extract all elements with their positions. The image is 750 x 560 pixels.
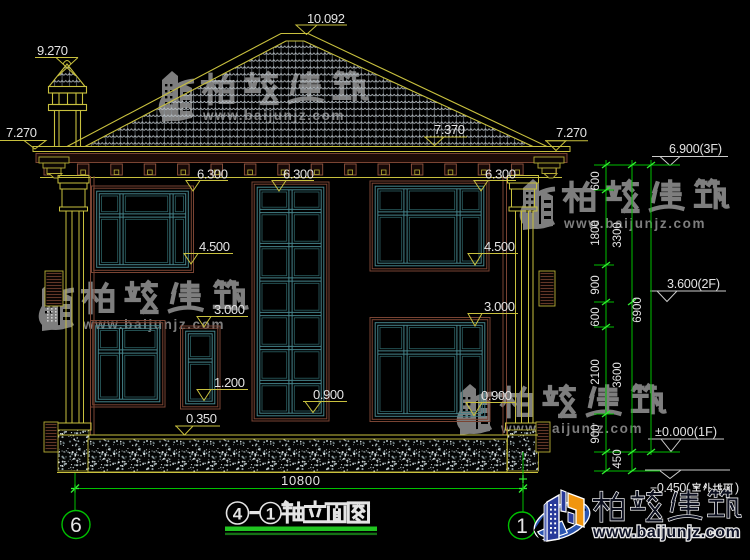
svg-text:7.270: 7.270 xyxy=(556,125,587,140)
svg-text:±0.000(1F): ±0.000(1F) xyxy=(655,425,717,439)
svg-text:4: 4 xyxy=(233,505,243,524)
svg-text:9.270: 9.270 xyxy=(37,43,68,58)
svg-text:1: 1 xyxy=(516,515,528,538)
svg-text:0.900: 0.900 xyxy=(313,387,344,402)
svg-text:900: 900 xyxy=(590,275,602,294)
svg-text:1.200: 1.200 xyxy=(214,375,245,390)
svg-text:600: 600 xyxy=(590,171,602,190)
svg-text:0.350: 0.350 xyxy=(186,411,217,426)
svg-text:0.900: 0.900 xyxy=(481,388,512,403)
svg-text:www.baijunjz.com: www.baijunjz.com xyxy=(592,524,740,541)
svg-text:600: 600 xyxy=(590,307,602,326)
svg-text:1: 1 xyxy=(266,505,275,524)
svg-text:3.000: 3.000 xyxy=(214,302,245,317)
svg-text:www.baijunjz.com: www.baijunjz.com xyxy=(82,317,225,332)
svg-text:www.baijunjz.com: www.baijunjz.com xyxy=(563,216,706,231)
svg-text:450: 450 xyxy=(612,449,624,468)
svg-text:6.300: 6.300 xyxy=(197,167,228,182)
svg-text:4.500: 4.500 xyxy=(484,239,515,254)
svg-text:3.600(2F): 3.600(2F) xyxy=(667,277,720,291)
svg-text:): ) xyxy=(735,481,739,495)
svg-text:6: 6 xyxy=(70,514,82,537)
svg-text:10800: 10800 xyxy=(281,473,320,488)
svg-text:3600: 3600 xyxy=(612,362,624,388)
svg-text:4.500: 4.500 xyxy=(199,239,230,254)
svg-text:7.270: 7.270 xyxy=(6,125,37,140)
svg-text:7.370: 7.370 xyxy=(434,122,465,137)
svg-text:10.092: 10.092 xyxy=(307,11,345,26)
svg-text:6.300: 6.300 xyxy=(283,167,314,182)
svg-text:6.900(3F): 6.900(3F) xyxy=(669,142,722,156)
svg-text:6900: 6900 xyxy=(632,297,644,323)
svg-text:900: 900 xyxy=(590,424,602,443)
svg-text:3.000: 3.000 xyxy=(484,299,515,314)
svg-text:2100: 2100 xyxy=(590,359,602,385)
svg-text:1800: 1800 xyxy=(590,220,602,246)
svg-text:6.300: 6.300 xyxy=(485,167,516,182)
svg-text:3300: 3300 xyxy=(612,222,624,248)
